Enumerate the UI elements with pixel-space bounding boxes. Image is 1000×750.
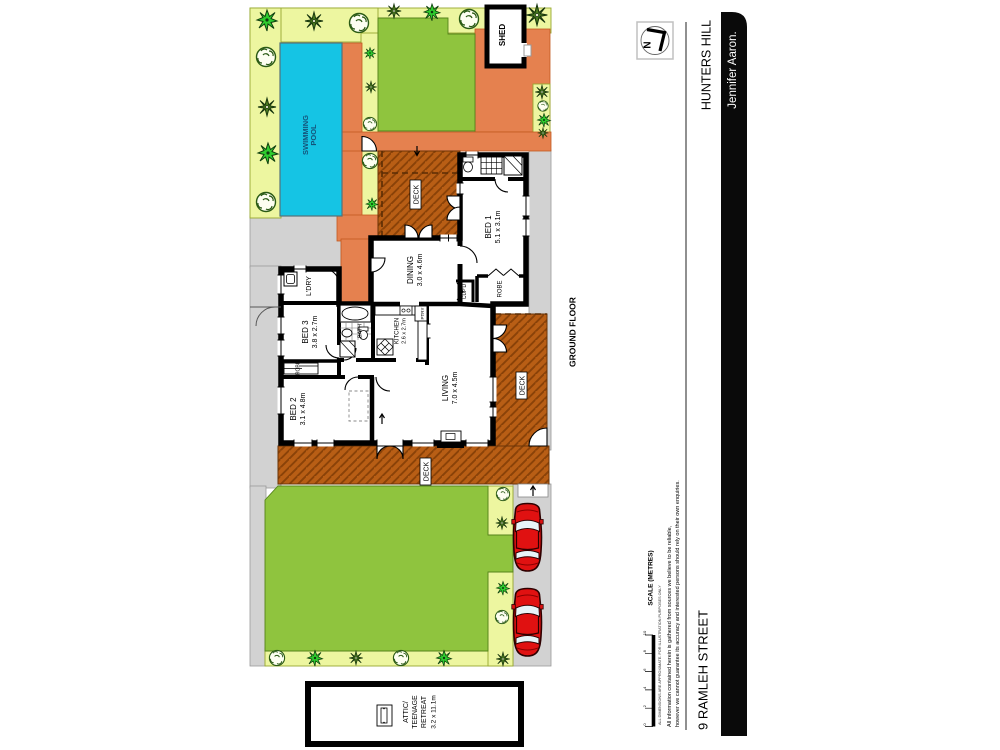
svg-text:however we cannot guarantee it: however we cannot guarantee its accuracy… <box>675 480 681 727</box>
svg-text:POOL: POOL <box>309 124 318 146</box>
svg-text:GROUND FLOOR: GROUND FLOOR <box>567 297 577 367</box>
svg-text:BED 1: BED 1 <box>484 215 493 239</box>
svg-text:DECK: DECK <box>520 375 527 395</box>
svg-text:DINING: DINING <box>406 256 415 284</box>
svg-text:SHED: SHED <box>498 24 507 46</box>
svg-text:N: N <box>643 41 654 48</box>
svg-text:ATTIC/: ATTIC/ <box>403 701 410 723</box>
svg-text:SCALE (METRES): SCALE (METRES) <box>648 550 655 605</box>
svg-text:DECK: DECK <box>414 184 421 204</box>
svg-text:KITCHEN: KITCHEN <box>395 318 401 344</box>
svg-text:7.0 x 4.5m: 7.0 x 4.5m <box>452 371 459 404</box>
svg-text:ALL DIMENSIONS ARE APPROXIMATE: ALL DIMENSIONS ARE APPROXIMATE. FOR ILLU… <box>658 585 662 725</box>
svg-text:3.8 x 2.7m: 3.8 x 2.7m <box>312 315 319 348</box>
svg-text:5.1 x 3.1m: 5.1 x 3.1m <box>495 210 502 243</box>
svg-text:PTRY: PTRY <box>420 308 425 320</box>
svg-text:RETREAT: RETREAT <box>421 695 428 728</box>
svg-text:2.6 x 2.7m: 2.6 x 2.7m <box>401 318 407 344</box>
svg-text:DECK: DECK <box>424 461 431 481</box>
svg-text:LIVING: LIVING <box>441 375 450 401</box>
svg-text:L'DRY: L'DRY <box>306 276 313 296</box>
svg-text:9 RAMLEH STREET: 9 RAMLEH STREET <box>695 610 710 730</box>
svg-text:Jennifer Aaron.: Jennifer Aaron. <box>727 31 739 108</box>
svg-text:ROBE: ROBE <box>498 280 504 297</box>
svg-text:3.0 x 4.6m: 3.0 x 4.6m <box>417 253 424 286</box>
svg-text:ROBE: ROBE <box>295 360 301 375</box>
svg-text:3.1 x 4.8m: 3.1 x 4.8m <box>300 392 307 425</box>
svg-text:BATH: BATH <box>357 324 363 338</box>
svg-text:HUNTERS HILL: HUNTERS HILL <box>699 20 713 110</box>
svg-text:3.2 x 11.1m: 3.2 x 11.1m <box>431 695 438 728</box>
svg-text:10: 10 <box>642 630 647 635</box>
svg-text:CUP'D: CUP'D <box>462 284 468 300</box>
svg-text:TEENAGE: TEENAGE <box>412 695 419 729</box>
svg-text:BED 2: BED 2 <box>289 397 298 421</box>
svg-text:BED 3: BED 3 <box>301 320 310 344</box>
svg-text:All information contained here: All information contained herein is gath… <box>667 525 673 727</box>
